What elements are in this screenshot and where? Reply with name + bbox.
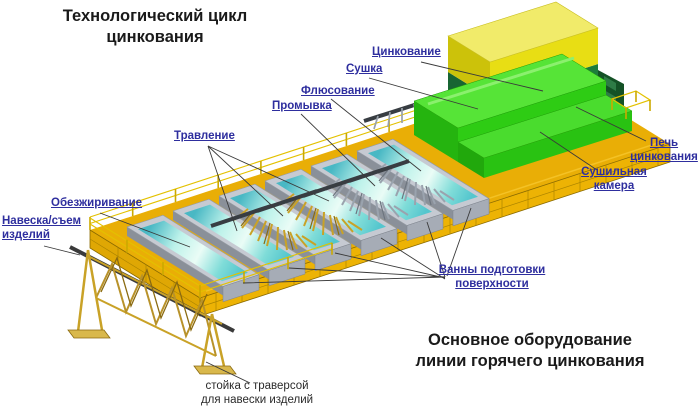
- galvanizing-diagram: Технологический цикл цинкования Основное…: [0, 0, 700, 410]
- label-pickling: Травление: [174, 129, 235, 143]
- label-zinc: Цинкование: [372, 45, 441, 59]
- top-title: Технологический цикл цинкования: [30, 6, 280, 47]
- label-rack-caption: стойка с траверсой для навески изделий: [182, 379, 332, 408]
- bottom-title: Основное оборудование линии горячего цин…: [398, 330, 662, 371]
- label-hanging: Навеска/съем изделий: [2, 214, 92, 243]
- label-furnace: Печь цинкования: [630, 136, 698, 165]
- label-drying: Сушка: [346, 62, 382, 76]
- label-degreasing: Обезжиривание: [51, 196, 142, 210]
- label-drying-chamber: Сушильная камера: [576, 165, 652, 194]
- label-prep-baths: Ванны подготовки поверхности: [437, 263, 547, 292]
- label-rinsing: Промывка: [272, 99, 332, 113]
- label-fluxing: Флюсование: [301, 84, 375, 98]
